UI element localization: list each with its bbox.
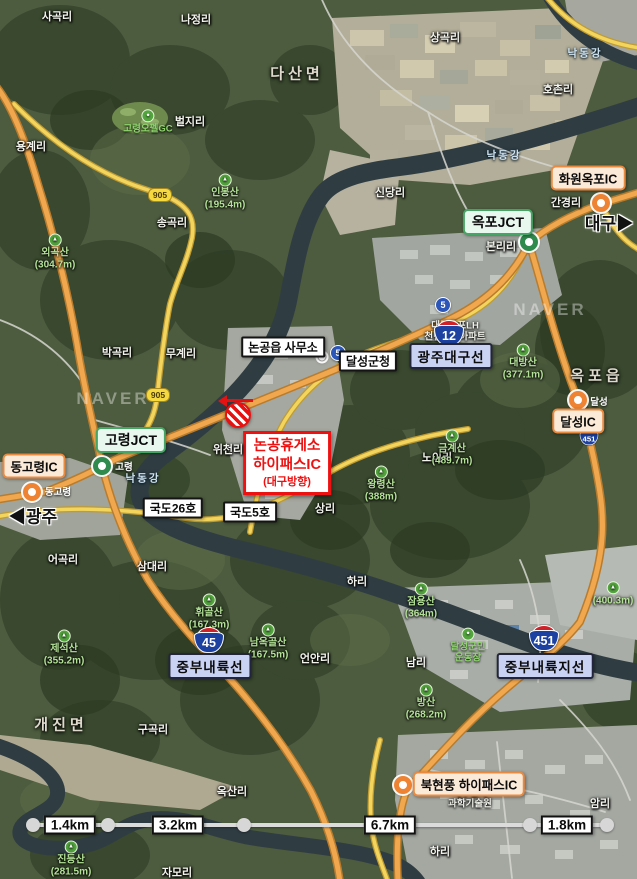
mountain-label: ▲진등산(281.5m) (51, 841, 92, 878)
distance-label: 1.4km (44, 816, 96, 835)
village-label: 남리 (406, 654, 426, 670)
village-label: 간경리 (551, 194, 581, 210)
ic-label-box: 달성IC (552, 409, 604, 434)
poi-icon: ● (142, 109, 155, 122)
town-label: 다산면 (270, 63, 323, 84)
highlight-box-nongong-rest-hipass-ic: 논공휴게소 하이패스IC (대구방향) (243, 431, 331, 495)
mountain-icon: ▲ (261, 624, 274, 637)
scale-line (33, 823, 607, 827)
mountain-label: ▲제석산(355.2m) (44, 630, 85, 667)
map-point-name: 동고령 (45, 484, 71, 498)
mountain-icon: ▲ (445, 430, 458, 443)
poi-label: ●고령오펠GC (123, 109, 172, 134)
expressway-shield-451: 451 (529, 625, 559, 651)
village-label: 옥산리 (217, 783, 247, 799)
village-label: 구곡리 (138, 721, 168, 737)
village-label: 사곡리 (42, 8, 72, 24)
village-label: 위천리 (213, 441, 243, 457)
scale-node (101, 818, 115, 832)
expressway-name-box: 중부내륙지선 (497, 653, 594, 679)
expressway-name-box: 중부내륙선 (168, 653, 251, 679)
ic-label-box: 동고령IC (2, 454, 65, 479)
ic-marker (592, 194, 610, 212)
mountain-icon: ▲ (606, 581, 619, 594)
ic-label-box: 화원옥포IC (551, 166, 626, 191)
poi-icon: ● (462, 628, 475, 641)
village-label: 어곡리 (48, 551, 78, 567)
local-route-badge-905: 905 (148, 188, 172, 202)
town-label: 개진면 (34, 714, 87, 735)
scale-node (600, 818, 614, 832)
village-label: 송곡리 (157, 214, 187, 230)
village-label: 하리 (347, 573, 367, 589)
mountain-icon: ▲ (516, 344, 529, 357)
jct-marker (93, 457, 111, 475)
village-label: 삼대리 (137, 558, 167, 574)
mountain-icon: ▲ (415, 583, 428, 596)
village-label: 상리 (315, 500, 335, 516)
shield-number: 451 (580, 432, 599, 445)
village-label: 나정리 (181, 11, 211, 27)
expressway-name-box: 광주대구선 (409, 343, 492, 369)
mountain-label: ▲왕령산(388m) (365, 466, 397, 503)
poi-label: ●달성군민운동장 (451, 628, 486, 665)
direction-label-daegu: 대구▶ (585, 210, 633, 235)
village-label: 호촌리 (543, 81, 573, 97)
hipass-ic-marker (225, 402, 251, 428)
mountain-label: ▲대방산(377.1m) (503, 344, 544, 381)
village-label: 언안리 (300, 650, 330, 666)
mountain-label: ▲외곡산(304.7m) (35, 234, 76, 271)
shield-number: 45 (194, 632, 224, 653)
jct-label-box: 고령JCT (96, 427, 166, 453)
distance-label: 3.2km (152, 816, 204, 835)
highlight-line-2: 하이패스IC (253, 456, 321, 475)
mountain-label: ▲방산(268.2m) (406, 684, 447, 721)
mountain-icon: ▲ (419, 684, 432, 697)
mountain-label: ▲(400.3m) (593, 581, 634, 607)
ic-marker (569, 391, 587, 409)
river-label: 낙동강 (487, 148, 522, 163)
highlight-line-3: (대구방향) (253, 475, 321, 489)
village-label: 자모리 (162, 864, 192, 879)
annotated-satellite-map: 논공휴게소 하이패스IC (대구방향) ◀광주 대구▶ NAVERNAVER사곡… (0, 0, 637, 879)
place-name-box: 국도5호 (223, 502, 277, 523)
local-route-badge-905: 905 (146, 388, 170, 402)
naver-watermark: NAVER (513, 300, 586, 320)
ic-marker (23, 483, 41, 501)
mountain-label: ▲금계산(489.7m) (432, 430, 473, 467)
village-label: 벌지리 (175, 113, 205, 129)
scale-node (523, 818, 537, 832)
national-route-badge-5: 5 (435, 297, 451, 313)
mountain-icon: ▲ (218, 174, 231, 187)
naver-watermark: NAVER (76, 389, 149, 409)
village-label: 무계리 (166, 345, 196, 361)
place-name-box: 논공읍 사무소 (241, 337, 325, 358)
village-label: 신당리 (375, 184, 405, 200)
jct-label-box: 옥포JCT (463, 209, 533, 235)
mountain-icon: ▲ (48, 234, 61, 247)
highlight-line-1: 논공휴게소 (253, 437, 321, 456)
ic-marker (394, 776, 412, 794)
mountain-label: ▲인봉산(195.4m) (205, 174, 246, 211)
place-name-box: 국도26호 (143, 498, 203, 519)
ic-label-box: 북현풍 하이패스IC (413, 772, 525, 797)
distance-label: 1.8km (541, 816, 593, 835)
jct-marker (520, 233, 538, 251)
village-label: 상곡리 (430, 29, 460, 45)
place-name-box: 달성군청 (339, 351, 397, 372)
mountain-icon: ▲ (202, 594, 215, 607)
town-label: 옥포읍 (570, 365, 623, 386)
shield-number: 451 (529, 630, 559, 651)
distance-label: 6.7km (364, 816, 416, 835)
map-point-name: 고령 (115, 459, 132, 473)
expressway-shield-45: 45 (194, 627, 224, 653)
village-label: 용계리 (16, 138, 46, 154)
village-label: 하리 (430, 843, 450, 859)
mountain-label: ▲잠용산(364m) (405, 583, 437, 620)
village-label: 박곡리 (102, 344, 132, 360)
scale-node (26, 818, 40, 832)
mountain-icon: ▲ (64, 841, 77, 854)
left-arrow-icon (218, 395, 227, 407)
mountain-label: ▲남옥골산(167.5m) (248, 624, 289, 661)
mountain-icon: ▲ (375, 466, 388, 479)
village-label: 본리리 (486, 238, 516, 254)
mountain-label: ▲휘골산(167.3m) (189, 594, 230, 631)
scale-node (237, 818, 251, 832)
river-label: 낙동강 (568, 46, 603, 61)
map-point-name: 달성 (590, 394, 607, 408)
village-label: 암리 (590, 795, 610, 811)
mountain-icon: ▲ (57, 630, 70, 643)
direction-label-gwangju: ◀광주 (9, 503, 57, 528)
